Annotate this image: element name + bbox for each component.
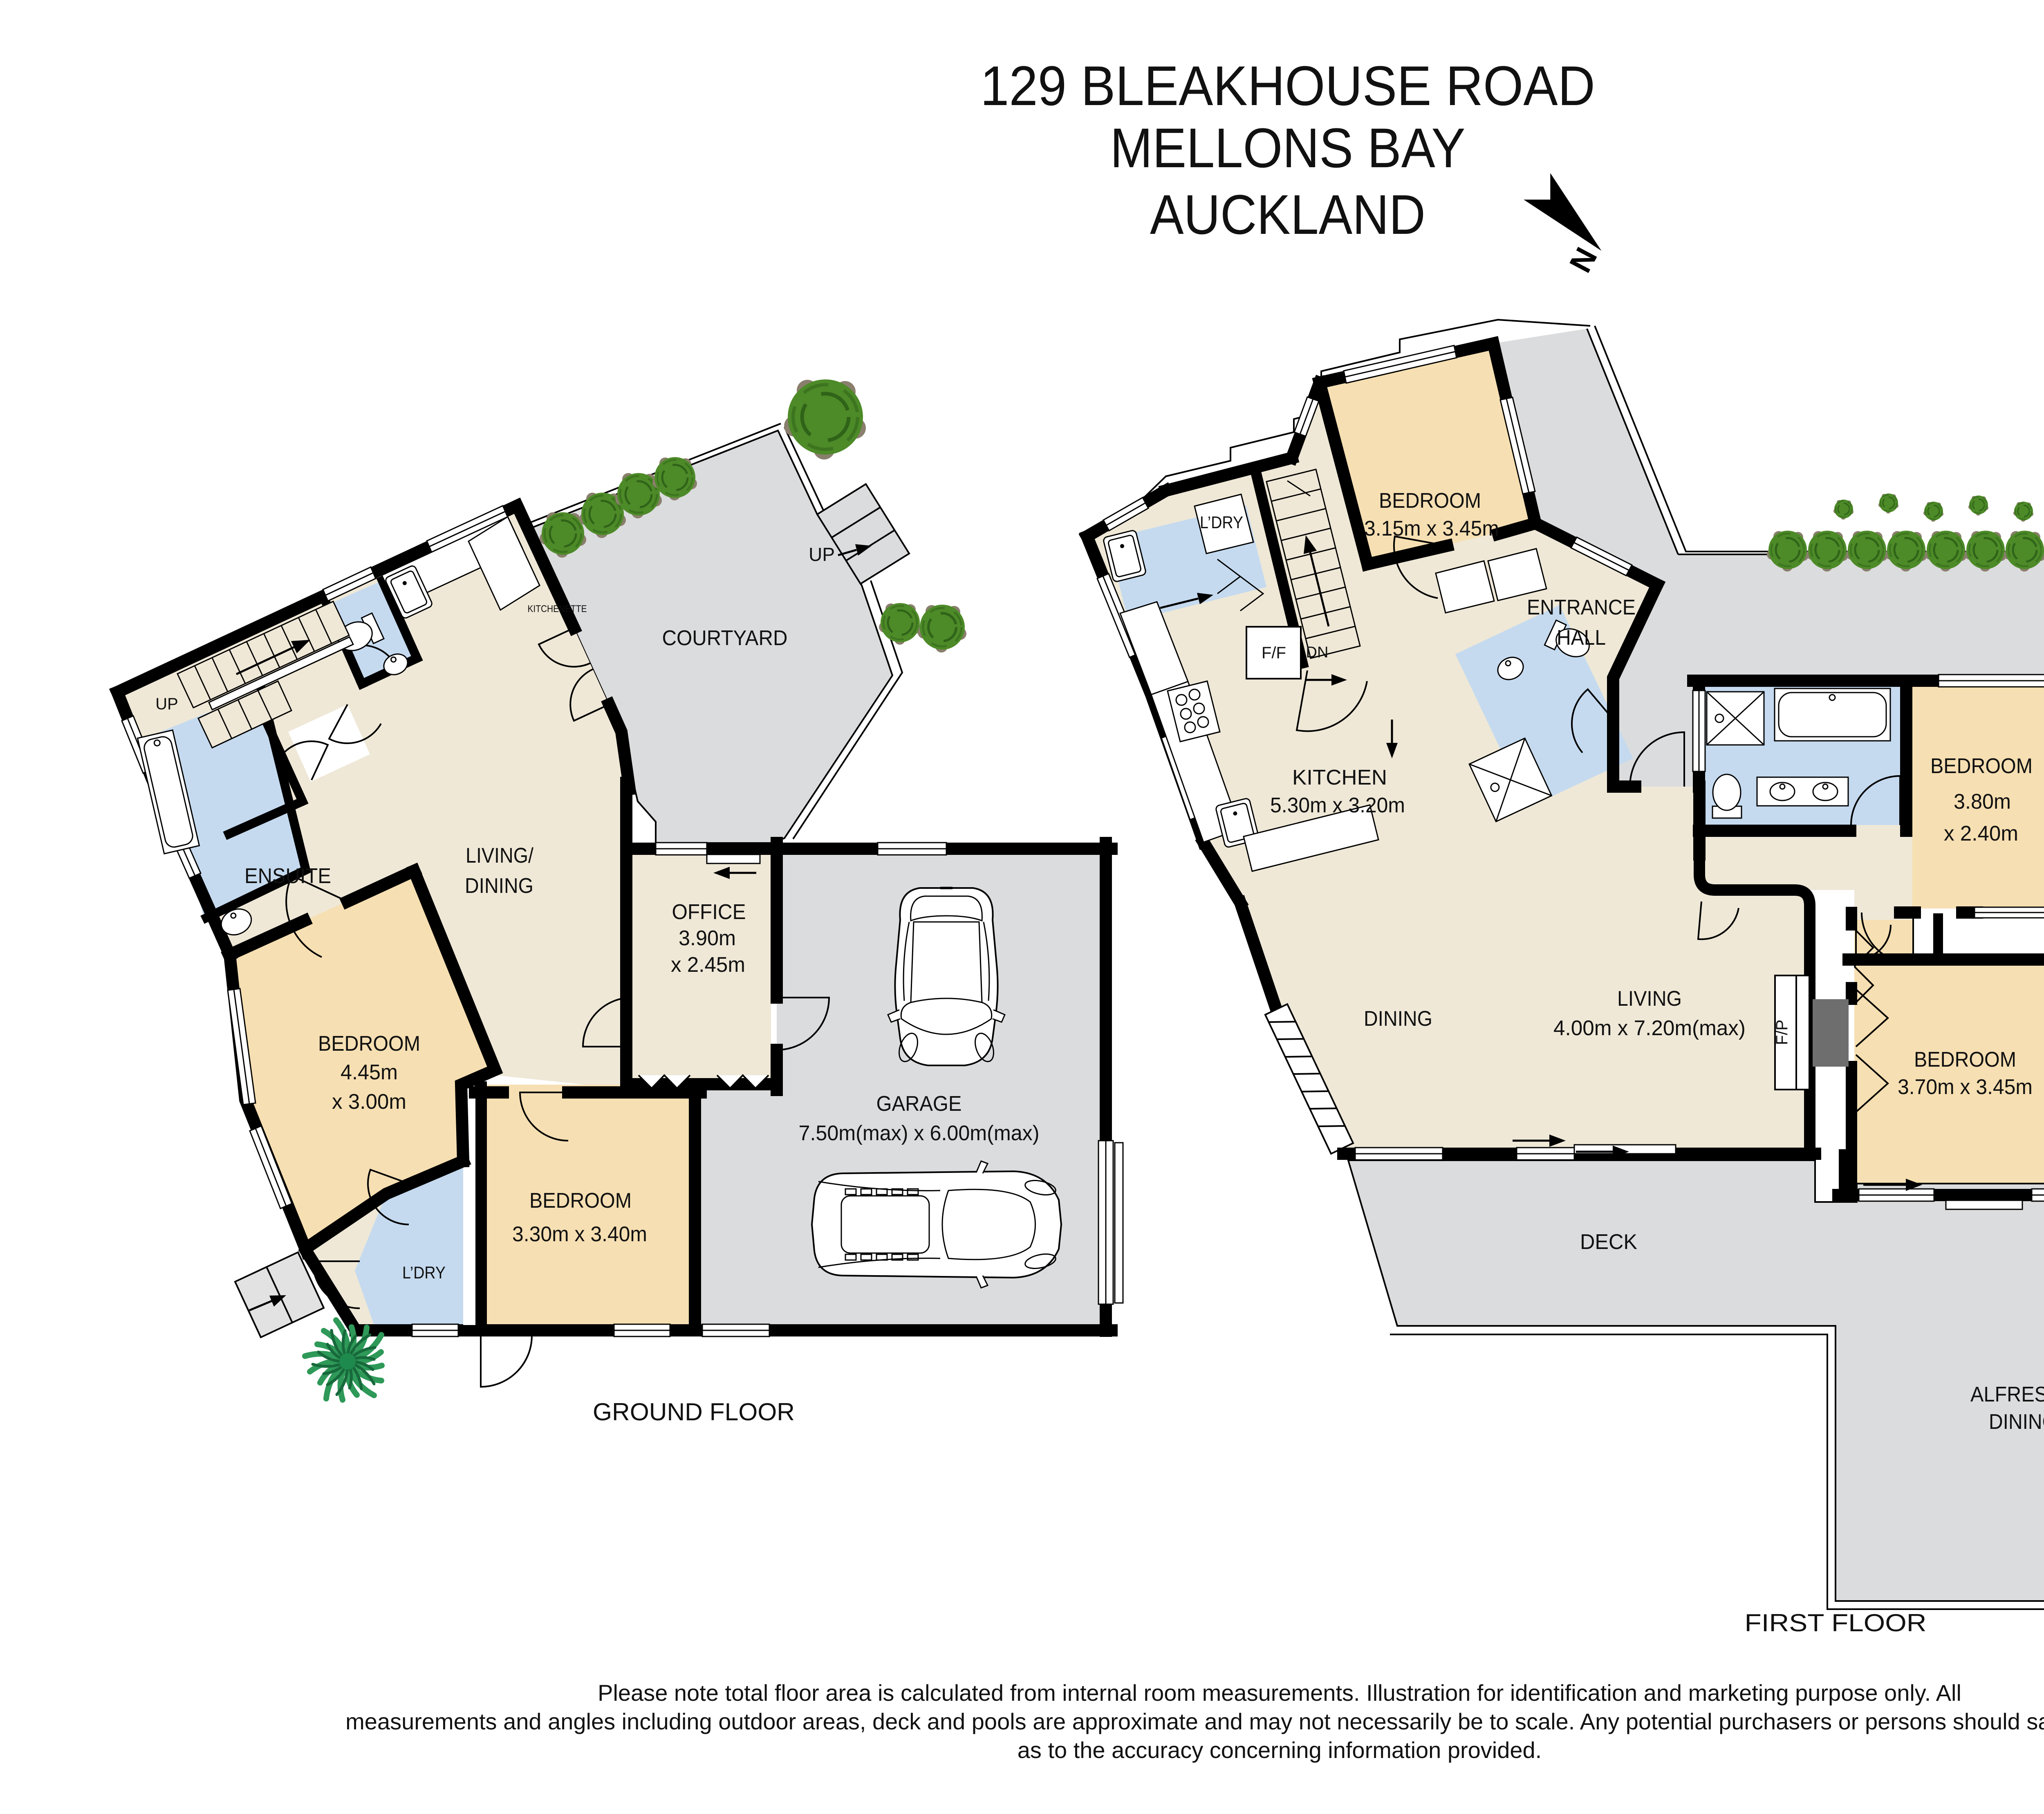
svg-text:measurements and angles includ: measurements and angles including outdoo… bbox=[345, 1709, 2044, 1734]
svg-text:GARAGE: GARAGE bbox=[876, 1092, 962, 1116]
svg-text:DECK: DECK bbox=[1580, 1230, 1637, 1254]
svg-text:4.00m x 7.20m(max): 4.00m x 7.20m(max) bbox=[1553, 1016, 1746, 1040]
svg-text:3.30m x 3.40m: 3.30m x 3.40m bbox=[512, 1222, 647, 1246]
svg-text:DN: DN bbox=[1306, 644, 1329, 661]
svg-text:UP: UP bbox=[155, 695, 178, 713]
svg-text:BEDROOM: BEDROOM bbox=[318, 1032, 420, 1056]
svg-text:DINING: DINING bbox=[1989, 1410, 2044, 1434]
svg-text:129 BLEAKHOUSE ROAD: 129 BLEAKHOUSE ROAD bbox=[980, 55, 1595, 117]
svg-text:KITCHENETTE: KITCHENETTE bbox=[528, 603, 587, 614]
svg-text:ENTRANCE: ENTRANCE bbox=[1527, 596, 1636, 619]
svg-text:F/F: F/F bbox=[1262, 644, 1286, 662]
svg-text:BEDROOM: BEDROOM bbox=[1379, 489, 1481, 513]
svg-text:KITCHEN: KITCHEN bbox=[1292, 766, 1387, 789]
svg-text:FIRST FLOOR: FIRST FLOOR bbox=[1745, 1609, 1927, 1637]
svg-text:DINING: DINING bbox=[465, 874, 533, 898]
svg-text:5.30m x 3.20m: 5.30m x 3.20m bbox=[1270, 794, 1405, 817]
svg-text:4.45m: 4.45m bbox=[341, 1061, 398, 1084]
svg-text:3.80m: 3.80m bbox=[1954, 790, 2011, 814]
svg-text:LIVING: LIVING bbox=[1617, 987, 1682, 1011]
svg-text:ENSUITE: ENSUITE bbox=[244, 864, 331, 888]
svg-text:OFFICE: OFFICE bbox=[672, 900, 746, 924]
svg-text:7.50m(max) x 6.00m(max): 7.50m(max) x 6.00m(max) bbox=[799, 1121, 1040, 1145]
svg-text:x 2.45m: x 2.45m bbox=[671, 953, 745, 977]
svg-text:MELLONS BAY: MELLONS BAY bbox=[1110, 117, 1466, 179]
svg-text:ALFRESCO: ALFRESCO bbox=[1970, 1383, 2044, 1406]
svg-text:BEDROOM: BEDROOM bbox=[1914, 1048, 2016, 1072]
svg-text:F/P: F/P bbox=[1773, 1020, 1791, 1045]
svg-text:DINING: DINING bbox=[1364, 1007, 1432, 1031]
svg-text:BEDROOM: BEDROOM bbox=[1930, 754, 2033, 778]
svg-text:L’DRY: L’DRY bbox=[402, 1263, 446, 1282]
svg-text:HALL: HALL bbox=[1557, 626, 1606, 650]
svg-text:as to the accuracy concerning: as to the accuracy concerning informatio… bbox=[1018, 1737, 1542, 1763]
svg-text:Please note total floor area i: Please note total floor area is calculat… bbox=[598, 1680, 1961, 1706]
svg-text:3.90m: 3.90m bbox=[679, 926, 736, 950]
svg-text:AUCKLAND: AUCKLAND bbox=[1150, 184, 1425, 246]
svg-text:UP: UP bbox=[809, 544, 835, 565]
svg-text:3.15m x 3.45m: 3.15m x 3.45m bbox=[1364, 517, 1499, 540]
svg-text:x 3.00m: x 3.00m bbox=[332, 1090, 406, 1114]
svg-text:GROUND FLOOR: GROUND FLOOR bbox=[593, 1398, 795, 1426]
svg-text:x 2.40m: x 2.40m bbox=[1944, 822, 2018, 845]
svg-text:3.70m x 3.45m: 3.70m x 3.45m bbox=[1898, 1075, 2033, 1099]
svg-text:L’DRY: L’DRY bbox=[1200, 513, 1243, 532]
svg-text:LIVING/: LIVING/ bbox=[466, 844, 533, 868]
svg-text:COURTYARD: COURTYARD bbox=[662, 626, 788, 650]
svg-text:BEDROOM: BEDROOM bbox=[529, 1189, 632, 1213]
